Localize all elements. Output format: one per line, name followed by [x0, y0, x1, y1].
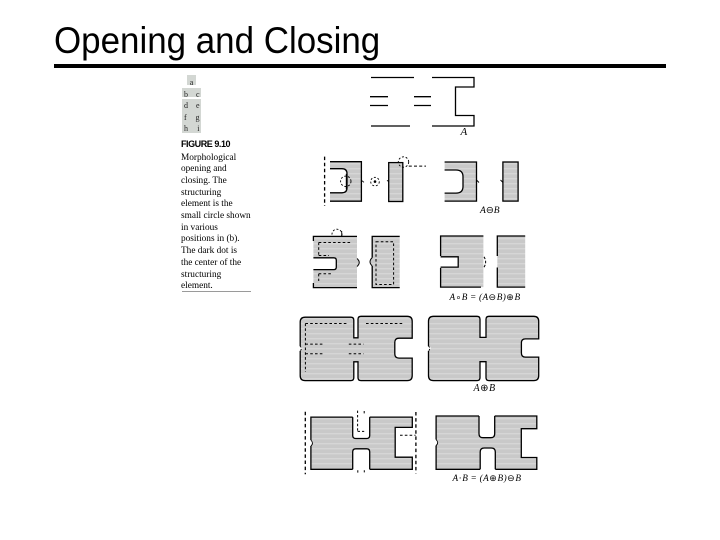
svg-text:A: A	[460, 126, 468, 138]
svg-text:A⊕B: A⊕B	[473, 383, 496, 394]
svg-text:A∘B = (A⊖B)⊕B: A∘B = (A⊖B)⊕B	[449, 292, 521, 302]
svg-text:A·B = (A⊕B)⊖B: A·B = (A⊕B)⊖B	[452, 473, 522, 483]
svg-text:A⊖B: A⊖B	[479, 206, 500, 216]
